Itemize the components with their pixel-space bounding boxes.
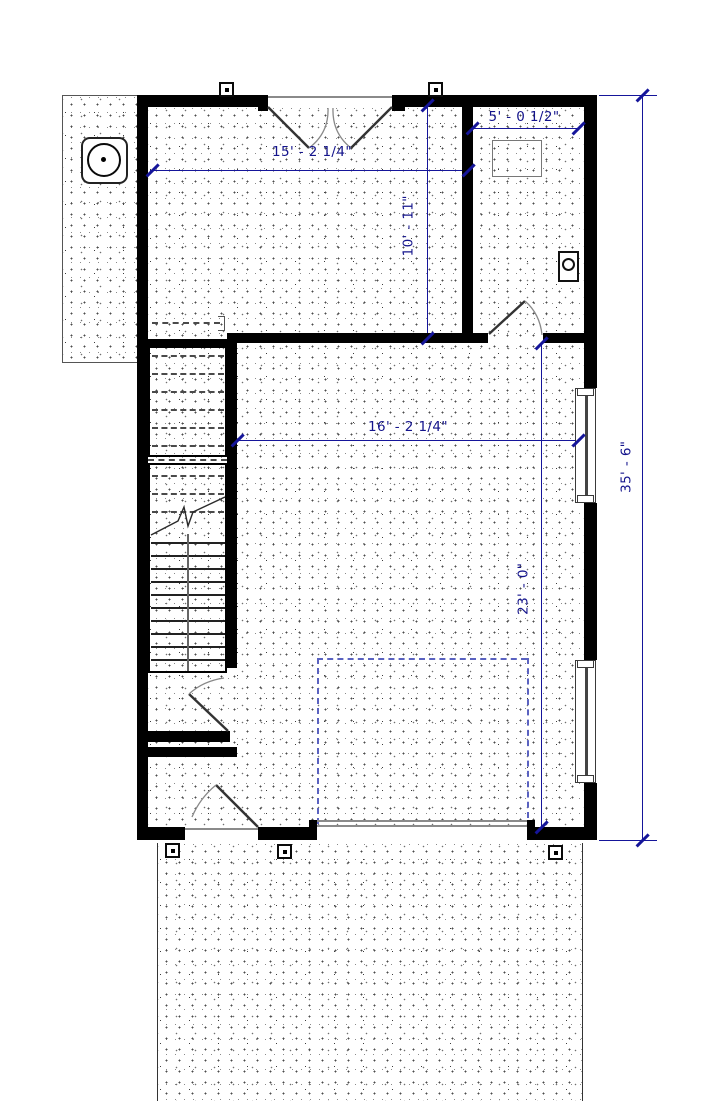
dim-label-upper-room-depth: 10' - 11" [402,186,416,266]
dim-label-top-main: 15' - 2 1/4" [250,146,374,160]
dim-label-top-right: 5' - 0 1/2" [470,111,578,125]
floor-plan-canvas: 15' - 2 1/4" 5' - 0 1/2" 10' - 11" 16' -… [0,0,712,1101]
doors-overlay [0,0,712,1101]
entry-door-leaf [216,785,258,827]
double-door-swing-left [309,108,328,148]
stair-landing-door-leaf [189,694,228,731]
room-door-swing [525,301,542,335]
double-door-leaf-left [268,107,309,148]
dim-label-lower-depth: 23' - 0" [517,549,531,629]
stair-landing-door-swing [189,678,224,694]
double-door-swing-right [333,108,351,148]
room-door-leaf [489,301,525,334]
stair-break-line [151,497,225,535]
dim-label-overall-depth: 35' - 6" [620,427,634,507]
dim-label-main-width: 16' - 2 1/4" [346,421,470,435]
double-door-leaf-right [351,107,392,148]
entry-door-swing [192,785,216,817]
